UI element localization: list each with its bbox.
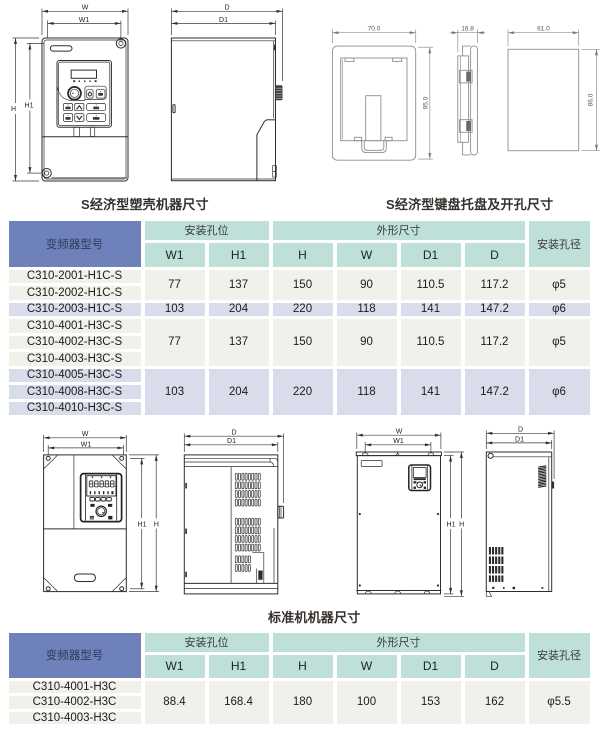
svg-text:W: W: [82, 5, 89, 12]
svg-text:W: W: [82, 431, 89, 438]
svg-text:D1: D1: [219, 17, 228, 24]
svg-text:70.0: 70.0: [368, 26, 381, 33]
svg-text:H1: H1: [25, 103, 34, 110]
svg-text:H: H: [11, 106, 16, 113]
svg-text:95.0: 95.0: [423, 96, 430, 109]
svg-text:D: D: [518, 427, 523, 434]
svg-text:D: D: [231, 430, 236, 437]
svg-text:W: W: [396, 429, 403, 436]
svg-text:W1: W1: [81, 441, 92, 448]
svg-text:H: H: [154, 522, 159, 529]
svg-text:D: D: [224, 5, 229, 12]
svg-text:61.0: 61.0: [537, 26, 550, 33]
svg-text:H: H: [459, 522, 464, 529]
svg-text:86.0: 86.0: [588, 93, 595, 106]
svg-text:W1: W1: [79, 17, 90, 24]
svg-text:H1: H1: [138, 522, 147, 529]
svg-text:D1: D1: [515, 436, 524, 443]
svg-text:16.8: 16.8: [461, 26, 474, 33]
svg-text:H1: H1: [447, 522, 456, 529]
svg-text:W1: W1: [393, 438, 404, 445]
svg-text:D1: D1: [227, 438, 236, 445]
